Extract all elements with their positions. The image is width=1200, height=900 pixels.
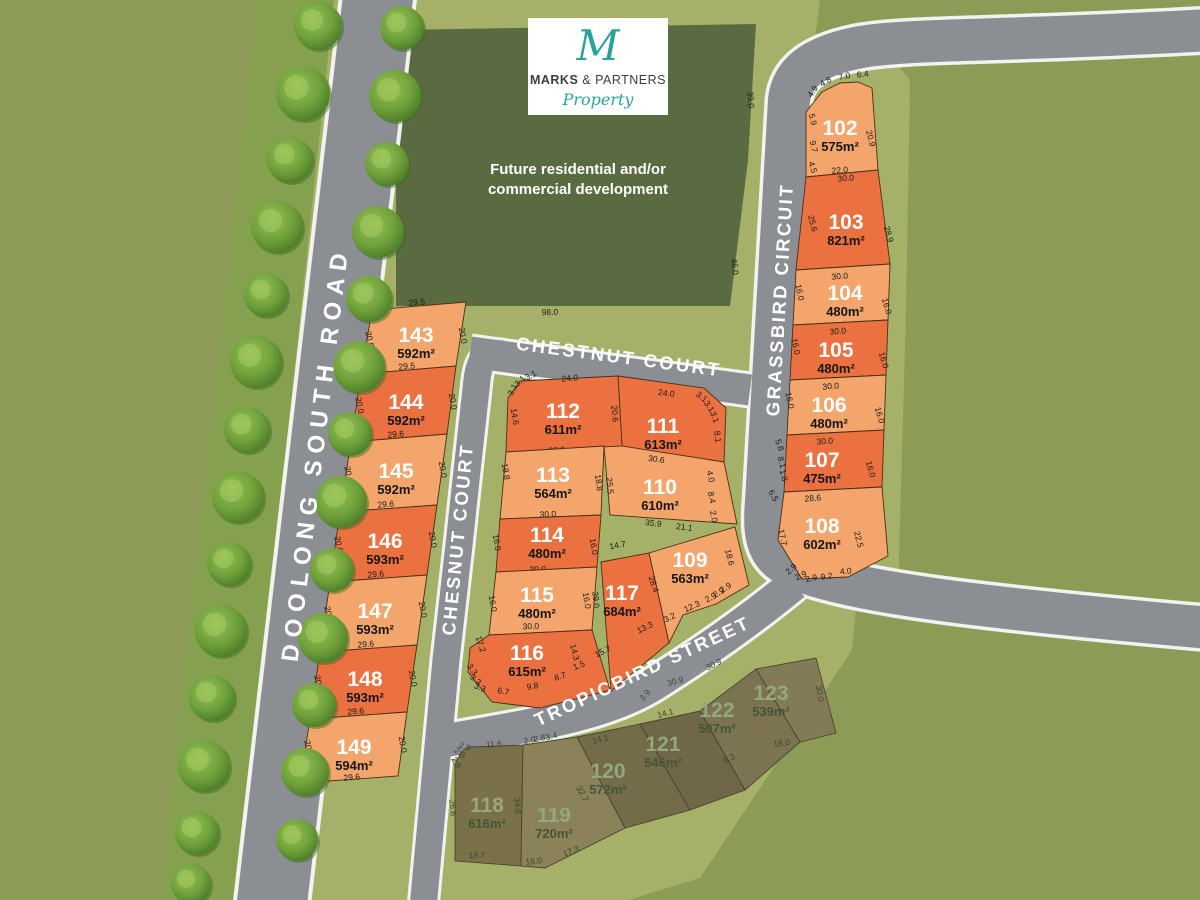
lot-number: 123 bbox=[753, 682, 788, 705]
lot-dimension: 29.6 bbox=[387, 428, 405, 439]
lot-number: 105 bbox=[818, 339, 853, 362]
lot-dimension: 24.0 bbox=[561, 372, 579, 383]
lot-dimension: 18.0 bbox=[525, 855, 543, 867]
lot-number: 144 bbox=[388, 391, 423, 414]
lot-number: 119 bbox=[537, 804, 571, 827]
lot-number: 104 bbox=[827, 282, 862, 305]
lot-114[interactable]: 114480m²16.016.030.0 bbox=[491, 515, 601, 574]
lot-dimension: 24.0 bbox=[658, 387, 676, 399]
lot-area: 546m² bbox=[644, 755, 682, 770]
lot-dimension: 29.6 bbox=[377, 498, 395, 509]
lot-dimension: 29.6 bbox=[367, 568, 385, 579]
lot-number: 122 bbox=[699, 699, 734, 722]
lot-area: 602m² bbox=[803, 537, 841, 552]
lot-area: 592m² bbox=[377, 482, 415, 497]
lot-105[interactable]: 105480m²30.016.016.0 bbox=[789, 320, 891, 380]
lot-area: 592m² bbox=[387, 413, 425, 428]
lot-dimension: 39.0 bbox=[590, 591, 601, 609]
lot-area: 480m² bbox=[518, 606, 556, 621]
lot-dimension: 29.6 bbox=[347, 705, 365, 716]
lot-number: 115 bbox=[520, 584, 554, 607]
lot-dimension: 2.0 bbox=[708, 510, 720, 524]
lot-area: 684m² bbox=[603, 604, 641, 619]
lot-area: 475m² bbox=[803, 471, 841, 486]
lot-dimension: 30.0 bbox=[829, 325, 847, 336]
lot-area: 616m² bbox=[468, 816, 506, 831]
lot-area: 480m² bbox=[528, 546, 566, 561]
block-dimension: 98.0 bbox=[541, 307, 558, 318]
lot-number: 107 bbox=[804, 449, 839, 472]
lot-number: 106 bbox=[811, 394, 846, 417]
lot-number: 109 bbox=[672, 549, 707, 572]
lot-118[interactable]: 118616m²2.82.82.811.626.634.618.7 bbox=[447, 738, 523, 866]
lot-dimension: 30.0 bbox=[816, 435, 833, 446]
lot-area: 480m² bbox=[810, 416, 848, 431]
lot-area: 480m² bbox=[817, 361, 855, 376]
lot-number: 108 bbox=[804, 515, 839, 538]
logo-name-rest: & PARTNERS bbox=[578, 73, 666, 87]
block-dimension: 39.0 bbox=[745, 91, 756, 109]
lot-area: 615m² bbox=[508, 664, 546, 679]
lot-number: 103 bbox=[828, 211, 863, 234]
lot-dimension: 6.4 bbox=[856, 68, 869, 79]
lot-dimension: 28.6 bbox=[804, 492, 821, 503]
lot-dimension: 29.5 bbox=[408, 296, 426, 307]
site-plan: Future residential and/or commercial dev… bbox=[0, 0, 1200, 900]
lot-area: 575m² bbox=[821, 139, 859, 154]
lot-112[interactable]: 112611m²3.13.13.124.014.620.630.0 bbox=[505, 368, 622, 456]
lot-dimension: 18.7 bbox=[468, 850, 485, 861]
lot-area: 593m² bbox=[366, 552, 404, 567]
lot-number: 102 bbox=[822, 117, 857, 140]
lot-area: 539m² bbox=[752, 704, 790, 719]
block-dimension: 46.0 bbox=[729, 258, 741, 276]
lot-number: 117 bbox=[605, 582, 639, 605]
lot-area: 572m² bbox=[589, 782, 627, 797]
logo-marks-and-partners: M MARKS & PARTNERS Property bbox=[528, 18, 668, 115]
future-block-label-line1: Future residential and/or bbox=[490, 161, 666, 178]
lot-107[interactable]: 107475m²30.05.88.11.816.0 bbox=[773, 430, 884, 492]
lot-dimension: 35.9 bbox=[645, 517, 663, 529]
lot-number: 111 bbox=[647, 415, 680, 438]
lot-number: 121 bbox=[645, 733, 680, 756]
lot-area: 720m² bbox=[535, 826, 573, 841]
lot-113[interactable]: 113564m²18.818.830.0 bbox=[500, 446, 606, 519]
lot-number: 145 bbox=[378, 460, 413, 483]
lot-dimension: 9.8 bbox=[526, 680, 540, 692]
lot-dimension: 29.6 bbox=[343, 771, 361, 782]
lot-area: 593m² bbox=[356, 622, 394, 637]
lot-number: 113 bbox=[536, 464, 570, 487]
lot-area: 613m² bbox=[644, 437, 682, 452]
lot-number: 146 bbox=[367, 530, 402, 553]
lot-area: 821m² bbox=[827, 233, 865, 248]
lot-dimension: 8.1 bbox=[712, 430, 723, 443]
lot-104[interactable]: 104480m²30.016.016.0 bbox=[793, 264, 894, 325]
lot-dimension: 11.6 bbox=[486, 738, 503, 749]
lot-number: 148 bbox=[347, 668, 382, 691]
lot-area: 594m² bbox=[335, 758, 373, 773]
lot-dimension: 30.0 bbox=[831, 270, 849, 281]
lot-dimension: 20.6 bbox=[609, 405, 620, 423]
lot-number: 118 bbox=[470, 794, 504, 817]
lot-number: 120 bbox=[590, 760, 625, 783]
lot-area: 593m² bbox=[346, 690, 384, 705]
lot-dimension: 29.5 bbox=[398, 360, 416, 371]
logo-initial: M bbox=[575, 21, 620, 70]
lot-number: 112 bbox=[546, 400, 580, 423]
lot-area: 610m² bbox=[641, 498, 679, 513]
lot-dimension: 25.5 bbox=[604, 477, 616, 495]
lot-dimension: 21.1 bbox=[676, 521, 694, 533]
lot-dimension: 30.0 bbox=[822, 380, 840, 391]
logo-tagline: Property bbox=[562, 90, 635, 109]
lot-dimension: 29.6 bbox=[357, 638, 375, 649]
lot-number: 149 bbox=[336, 736, 371, 759]
logo-name: MARKS & PARTNERS bbox=[530, 73, 666, 87]
lot-dimension: 30.0 bbox=[522, 621, 539, 632]
lot-area: 563m² bbox=[671, 571, 709, 586]
lot-area: 564m² bbox=[534, 486, 572, 501]
lot-number: 114 bbox=[530, 524, 564, 547]
lot-number: 147 bbox=[357, 600, 392, 623]
lot-dimension: 6.7 bbox=[497, 685, 511, 697]
lot-number: 116 bbox=[510, 642, 544, 665]
lot-area: 592m² bbox=[397, 346, 435, 361]
lot-dimension: 4.0 bbox=[839, 565, 852, 576]
lot-106[interactable]: 106480m²30.016.016.0 bbox=[783, 375, 887, 435]
lot-area: 507m² bbox=[698, 721, 736, 736]
logo-name-bold: MARKS bbox=[530, 73, 578, 87]
lot-dimension: 9.2 bbox=[820, 570, 833, 582]
lot-number: 110 bbox=[643, 476, 677, 499]
lot-number: 143 bbox=[398, 324, 433, 347]
lot-dimension: 30.0 bbox=[837, 172, 855, 183]
future-block-label-line2: commercial development bbox=[488, 181, 668, 198]
lot-115[interactable]: 115480m²16.016.030.0 bbox=[487, 567, 597, 635]
site-plan-canvas: Future residential and/or commercial dev… bbox=[0, 0, 1200, 900]
lot-area: 480m² bbox=[826, 304, 864, 319]
lot-area: 611m² bbox=[545, 422, 583, 437]
lot-dimension: 26.6 bbox=[447, 799, 458, 817]
